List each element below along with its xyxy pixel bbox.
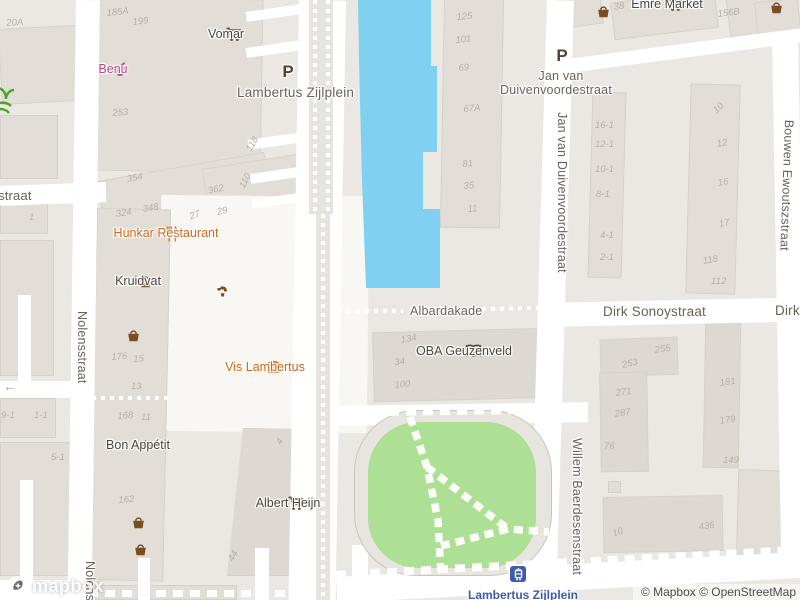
building	[588, 92, 627, 279]
street-label-lambertus-zijlplein: Lambertus Zijlplein	[237, 85, 354, 100]
road-markings	[88, 590, 338, 597]
building-oba	[372, 328, 556, 403]
footpath-dots	[92, 396, 168, 400]
tram-track	[321, 214, 325, 600]
canal-water	[358, 0, 440, 288]
poi-label: Kruidvat	[115, 274, 161, 288]
poi-label: OBA Geuzenveld	[416, 344, 512, 358]
building	[608, 481, 621, 493]
mapbox-logo[interactable]: mapbox	[6, 575, 104, 598]
tram-stop[interactable]	[510, 566, 526, 582]
map-attribution[interactable]: © Mapbox © OpenStreetMap	[633, 584, 800, 600]
street-label: straat	[0, 188, 32, 203]
poi-label: Bon Appétit	[106, 438, 170, 452]
poi-label: Emre Market	[631, 0, 703, 11]
street-label-dirk-sonoystraat: Dirk Sonoystraat	[603, 304, 706, 319]
tram-track	[313, 0, 317, 214]
street-label-dirk-partial: Dirk	[775, 303, 800, 318]
street-label-jan-van-line1: Jan van	[538, 69, 583, 83]
street-label-jan-van-line2: Duivenvoordestraat	[500, 83, 612, 97]
tram-icon	[510, 566, 526, 582]
poi-label: Vis Lambertus	[225, 360, 305, 374]
building	[685, 83, 740, 294]
footpath-albardakade	[338, 309, 403, 313]
park-green	[368, 422, 536, 568]
road	[18, 295, 31, 387]
mapbox-logo-icon	[6, 575, 29, 598]
oneway-arrow-icon: ←	[3, 378, 17, 394]
building	[0, 204, 48, 234]
street-label-willem-baerdesenstraat: Willem Baerdesenstraat	[570, 438, 584, 575]
street-label-albardakade: Albardakade	[410, 304, 482, 318]
tram-stop-label: Lambertus Zijlplein	[468, 588, 578, 600]
building	[0, 115, 58, 179]
building	[599, 372, 649, 473]
poi-label: Vomar	[208, 27, 244, 41]
poi-label: Albert Heijn	[256, 496, 321, 510]
street-label-jan-van-vertical: Jan van Duivenvoordestraat	[555, 112, 569, 273]
building	[703, 322, 742, 469]
building	[0, 442, 76, 576]
parking-icon: P	[282, 62, 293, 82]
building	[440, 0, 504, 229]
poi-label: Hunkar Restaurant	[114, 226, 219, 240]
street-label-nolensstraat: Nolensstraat	[75, 311, 89, 384]
parking-icon: P	[556, 46, 567, 66]
building	[0, 398, 56, 438]
tram-track	[326, 0, 330, 214]
map-canvas[interactable]: ← 20A185A1992531183543243483621102927112…	[0, 0, 800, 600]
poi-label: Benu	[98, 62, 127, 76]
building	[603, 495, 724, 553]
mapbox-logo-text: mapbox	[32, 576, 104, 597]
